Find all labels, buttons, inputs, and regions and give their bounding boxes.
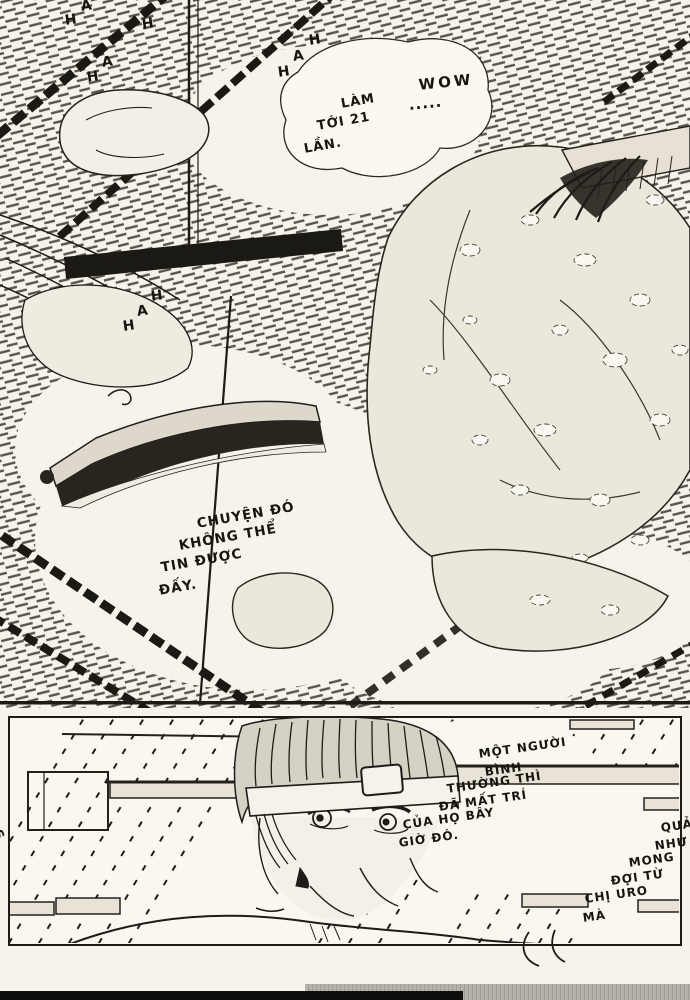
dialog-line: QUẢ	[660, 818, 690, 834]
panel-1: WOW ..... LÀM TỚI 21 LẦN. CHUYỆN ĐÓ KHÔN…	[0, 0, 690, 708]
laugh-sfx-letter: A	[136, 303, 149, 318]
panel-2	[8, 716, 682, 946]
laugh-sfx-letter: H	[308, 32, 322, 47]
laugh-sfx-letter: H	[277, 64, 291, 79]
panel1-bottom-border	[0, 701, 690, 705]
manga-page: WOW ..... LÀM TỚI 21 LẦN. CHUYỆN ĐÓ KHÔN…	[0, 0, 690, 1000]
laugh-sfx-letter: A	[101, 54, 114, 69]
headband-plate	[361, 764, 403, 795]
panel-2-artwork	[10, 718, 679, 943]
laugh-sfx-letter: A	[80, 0, 93, 14]
laugh-sfx-letter: H	[64, 12, 78, 27]
laugh-sfx-letter: H	[150, 288, 164, 303]
laugh-sfx-letter: A	[292, 48, 305, 63]
bubble-tail	[515, 928, 585, 974]
chin-hatching	[310, 924, 340, 942]
edge-sfx-letter: S	[0, 828, 6, 842]
laugh-sfx-letter: H	[86, 69, 100, 84]
laugh-sfx-letter: H	[141, 16, 155, 31]
scan-artifact-black-strip	[0, 991, 463, 1000]
laugh-sfx-letter: H	[122, 318, 136, 333]
wow-line: .....	[408, 94, 443, 112]
hand-shape	[233, 573, 333, 648]
dialog-line: MÀ	[582, 909, 607, 924]
